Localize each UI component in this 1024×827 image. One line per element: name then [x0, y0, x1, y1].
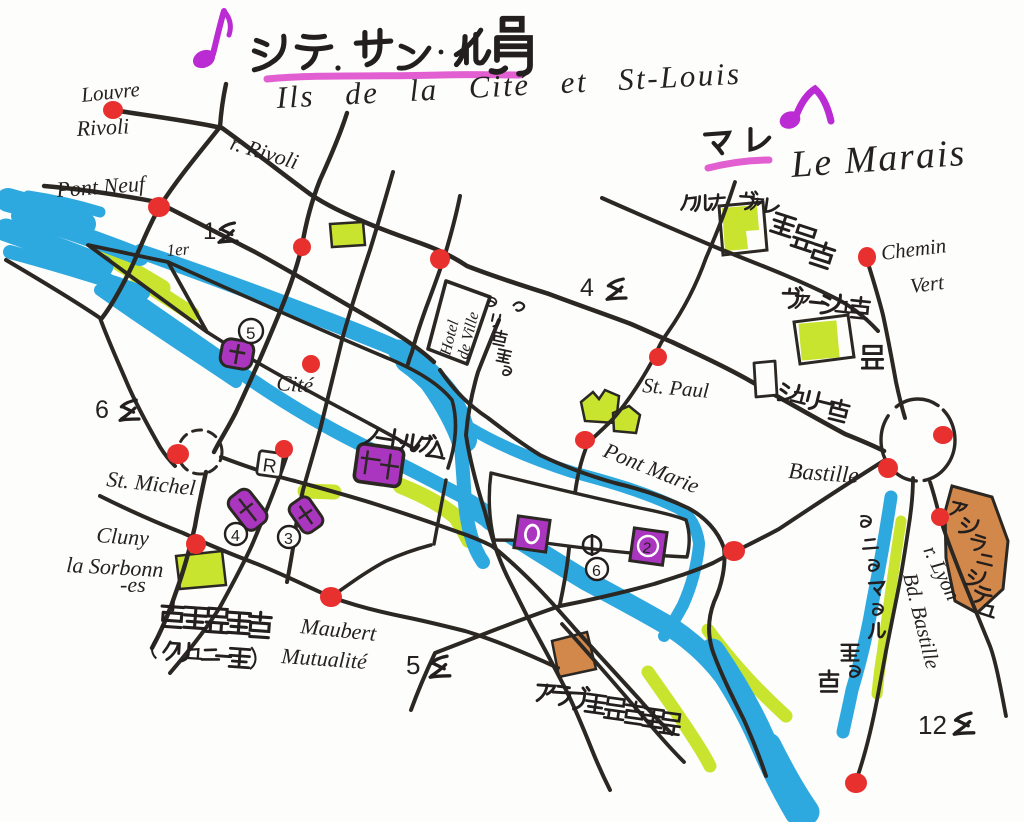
svg-text:1er: 1er — [166, 239, 190, 260]
svg-text:la Sorbonn: la Sorbonn — [66, 552, 164, 582]
svg-text:Bastille: Bastille — [788, 458, 860, 488]
svg-text:5: 5 — [406, 650, 420, 680]
svg-text:Cluny: Cluny — [96, 522, 150, 551]
svg-text:4: 4 — [580, 274, 594, 302]
svg-text:12: 12 — [918, 710, 947, 740]
svg-text:6: 6 — [592, 563, 601, 580]
svg-text:Vert: Vert — [909, 270, 947, 298]
svg-text:Cité: Cité — [276, 370, 316, 398]
svg-text:5: 5 — [246, 324, 255, 343]
svg-text:6: 6 — [95, 396, 109, 424]
svg-text:Rivoli: Rivoli — [75, 113, 130, 141]
svg-text:4: 4 — [231, 528, 240, 545]
svg-text:R: R — [261, 455, 278, 478]
svg-text:-es: -es — [120, 572, 146, 597]
svg-text:3: 3 — [284, 531, 293, 548]
svg-text:1: 1 — [203, 218, 216, 245]
